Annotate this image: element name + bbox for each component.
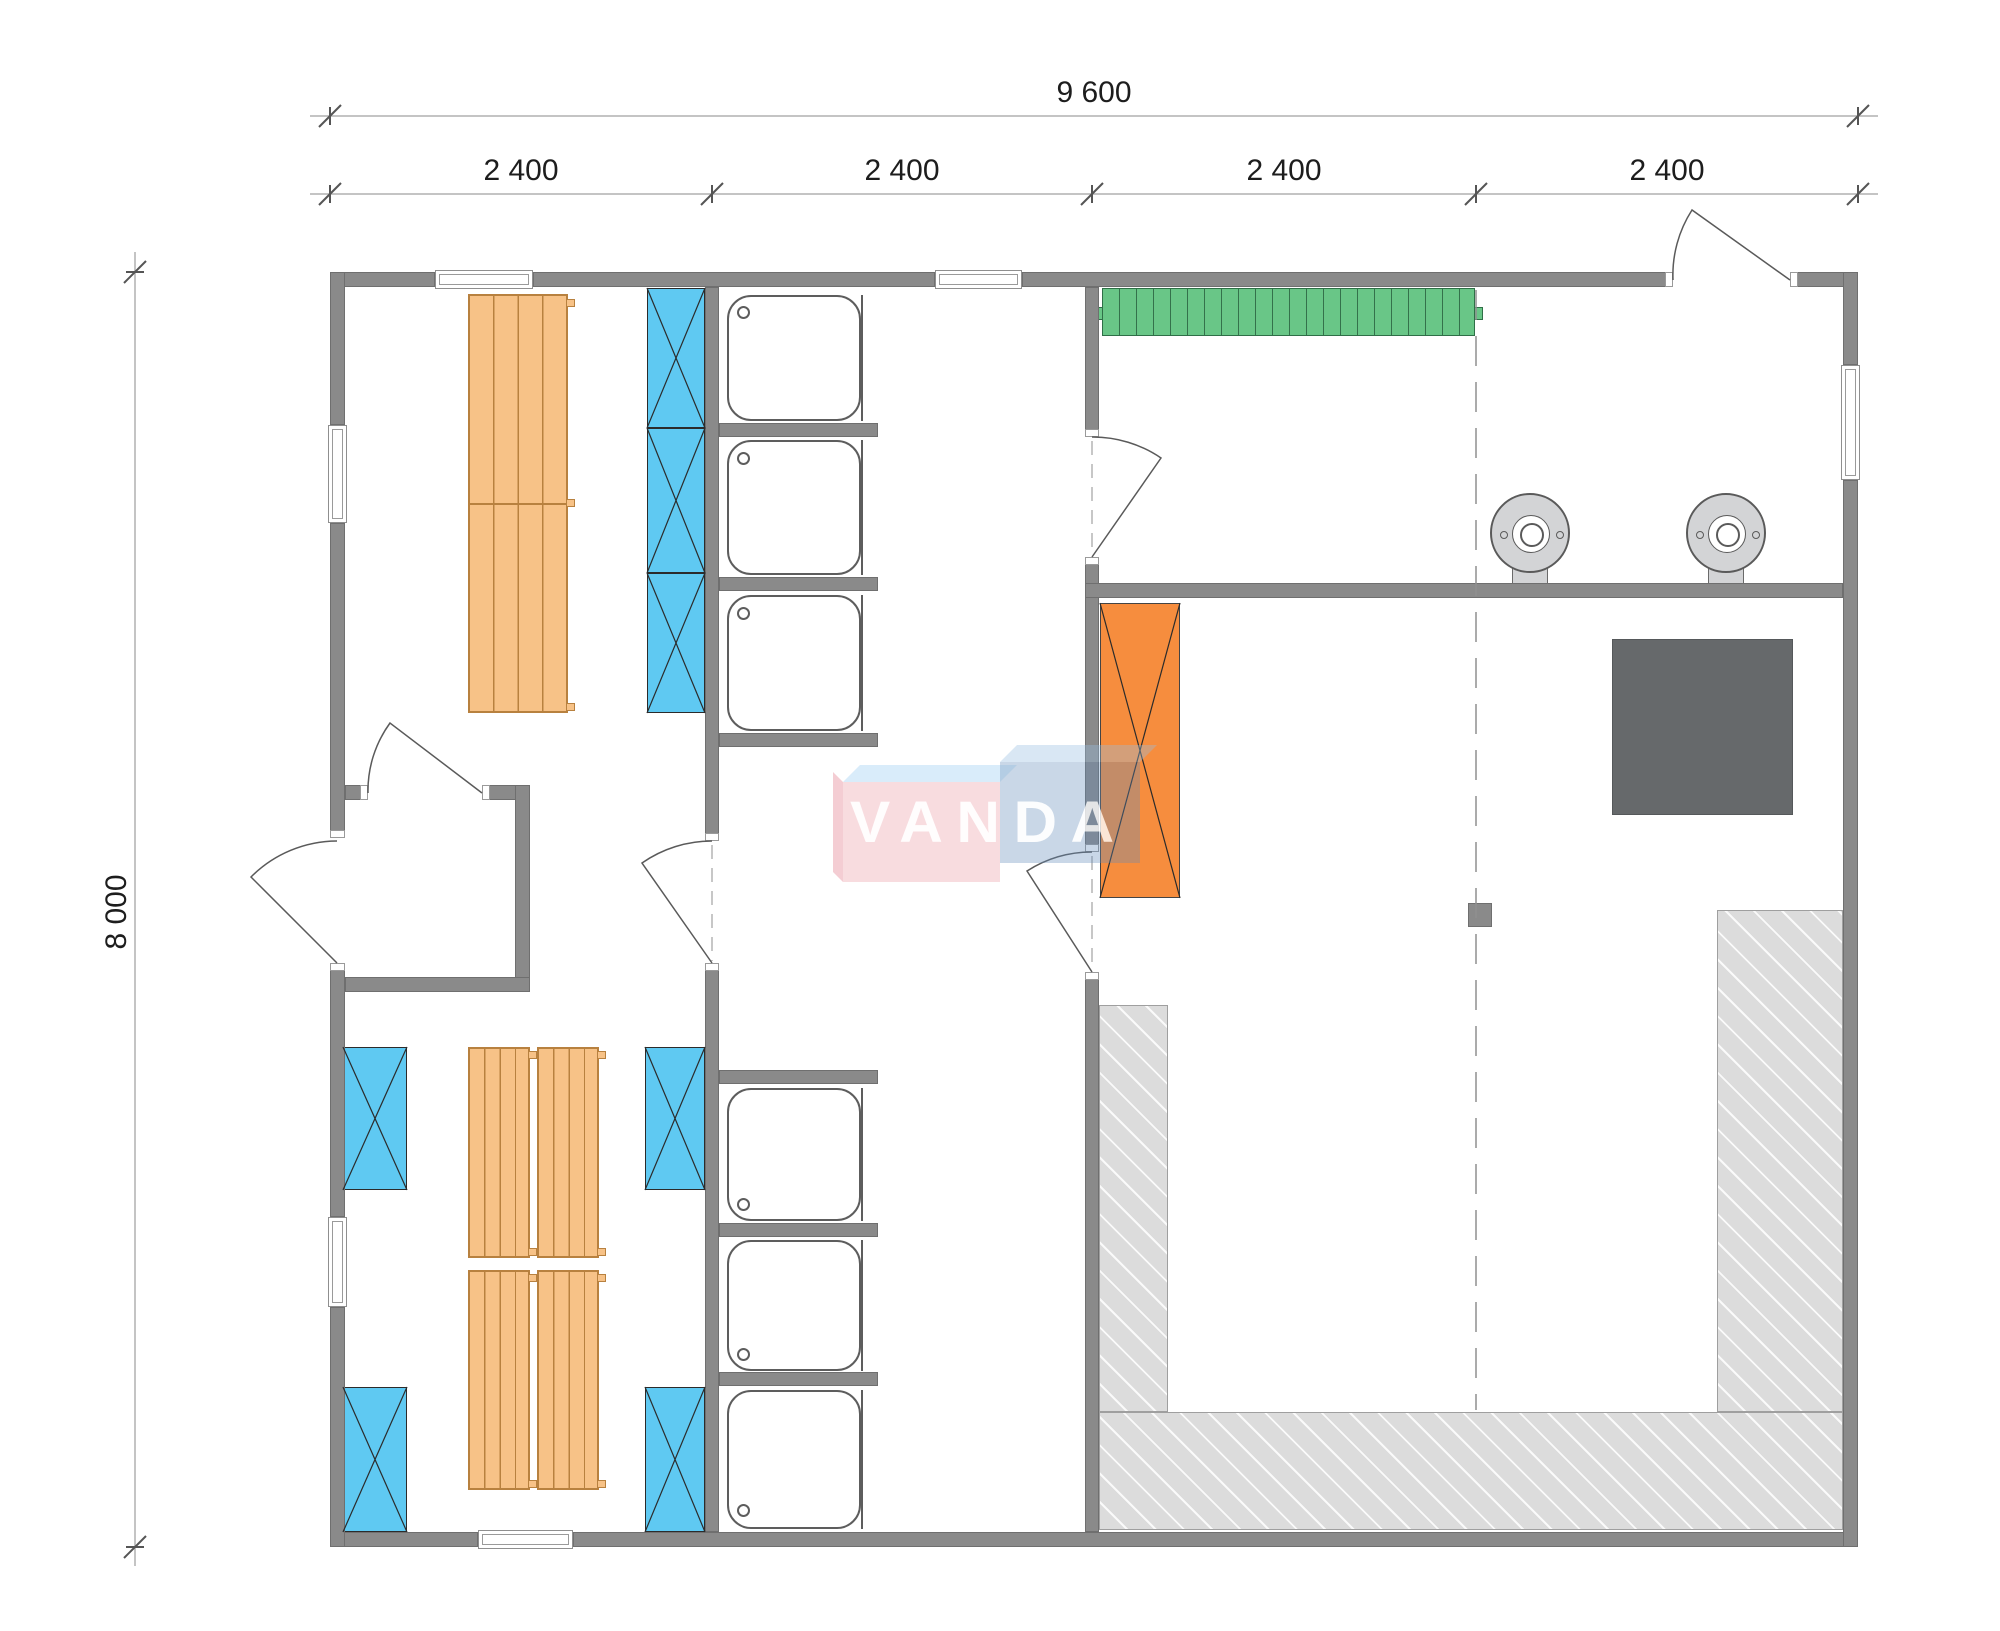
dimension-lines [135,116,1878,1566]
door-swing-changing-to-shower [642,841,712,963]
door-swing-top-right [1673,210,1790,280]
section-line [712,290,1476,1410]
locker-x-marks [343,288,1180,1532]
door-swing-shower-to-corridor [1092,437,1161,557]
plan-linework [0,0,2000,1631]
door-swing-vestibule [368,723,482,793]
door-swing-shower-to-sauna [1027,852,1092,972]
floor-plan-canvas: 9 600 2 400 2 400 2 400 2 400 8 000 [0,0,2000,1631]
door-swing-entrance [251,841,337,963]
dimension-ticks [124,105,1869,1558]
